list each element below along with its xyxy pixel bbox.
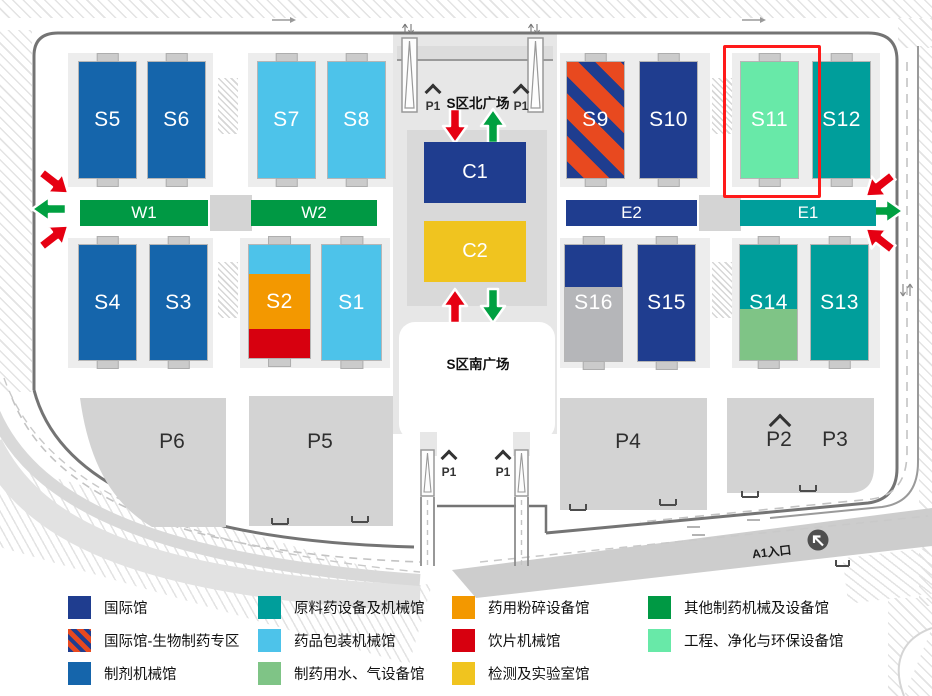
walkway-band [420,432,437,456]
hall-s5-label: S5 [79,62,136,178]
chevron-decor [712,262,732,318]
hall-s8-label: S8 [328,62,385,178]
parking-p3-label: P3 [805,428,865,452]
legend-item: 其他制药机械及设备馆 [648,596,932,619]
legend-item: 药品包装机械馆 [258,629,452,652]
exit-arrow [32,197,66,221]
chevron-decor [218,262,238,318]
hall-c1-label: C1 [462,161,488,184]
legend-swatch-packaging [258,629,281,652]
p1-label: P1 [496,465,511,479]
caret-up-icon [425,84,442,101]
hatch-strip [0,30,32,392]
legend-label: 药用粉碎设备馆 [488,597,590,618]
legend-swatch-decoction [452,629,475,652]
legend-label: 制剂机械馆 [104,663,177,684]
legend-label: 饮片机械馆 [488,630,561,651]
hall-s2[interactable]: S2 [249,245,310,358]
hall-s9[interactable]: S9 [567,62,624,178]
legend-swatch-engineering [648,629,671,652]
a1-entrance-icon [808,530,829,551]
walkway-connector [699,195,741,231]
hall-w2[interactable]: W2 [251,200,377,226]
parking-entrance-marks [272,485,816,524]
hall-s16[interactable]: S16 [565,245,622,361]
parking-p4-label: P4 [598,430,658,454]
p1-label: P1 [514,99,529,113]
hall-s13[interactable]: S13 [811,245,868,360]
hall-e2-label: E2 [621,203,642,223]
parking-p2-label: P2 [749,428,809,452]
hall-s1[interactable]: S1 [322,245,381,360]
hall-w1[interactable]: W1 [80,200,208,226]
chevron-decor [218,78,238,134]
parking-p6-label: P6 [142,430,202,454]
legend-swatch-water-gas [258,662,281,685]
tower-road-edges [421,497,528,566]
p1-bridge-tag: P1 [420,86,446,113]
p1-label: P1 [442,465,457,479]
legend-swatch-preparation [68,662,91,685]
hall-c2-label: C2 [462,240,488,263]
hall-s14-label: S14 [740,245,797,360]
legend-label: 原料药设备及机械馆 [294,597,425,618]
p1-bridge-tag: P1 [436,452,462,479]
south-plaza-label: S区南广场 [442,353,514,373]
p1-label: P1 [426,99,441,113]
legend-item: 工程、净化与环保设备馆 [648,629,932,652]
hall-w2-label: W2 [301,203,327,223]
caret-up-icon [441,450,458,467]
venue-boundary [529,506,546,533]
legend-swatch-other [648,596,671,619]
hall-s10[interactable]: S10 [640,62,697,178]
legend-item: 制药用水、气设备馆 [258,662,452,685]
legend-swatch-international [68,596,91,619]
hatch-strip [898,18,932,48]
hatch-strip [0,0,932,18]
legend-swatch-api [258,596,281,619]
caret-up-icon [513,84,530,101]
hall-e2[interactable]: E2 [566,200,697,226]
south-plaza-area [399,322,555,440]
caret-up-icon [495,450,512,467]
hall-e1-label: E1 [798,203,819,223]
legend-label: 药品包装机械馆 [294,630,396,651]
road-direction-arrows [901,284,913,296]
hall-s3-label: S3 [150,245,207,360]
north-crosswalk [397,46,553,61]
north-plaza-label: S区北广场 [443,92,513,112]
bridge-tower [515,450,528,496]
parking-p5-label: P5 [290,430,350,454]
hall-s2-label: S2 [249,245,310,358]
legend-label: 国际馆 [104,597,148,618]
hall-s15[interactable]: S15 [638,245,695,361]
legend-swatch-testing-lab [452,662,475,685]
hall-s13-label: S13 [811,245,868,360]
hall-s16-label: S16 [565,245,622,361]
hall-s8[interactable]: S8 [328,62,385,178]
road-arrow-marks [687,520,760,535]
hall-s12-label: S12 [813,62,870,178]
hall-s6[interactable]: S6 [148,62,205,178]
legend-label: 其他制药机械及设备馆 [684,597,829,618]
hall-e1[interactable]: E1 [740,200,876,226]
legend-item: 饮片机械馆 [452,629,648,652]
venue-map: S5 S6 S7 S8 S9 S10 S11 S12 S4 S3 S2 S1 S… [0,0,932,696]
p1-bridge-tag: P1 [508,86,534,113]
p1-bridge-tag: P1 [490,452,516,479]
hall-c1[interactable]: C1 [424,142,526,203]
legend-label: 工程、净化与环保设备馆 [684,630,844,651]
legend-label: 检测及实验室馆 [488,663,590,684]
legend-item: 制剂机械馆 [68,662,258,685]
hall-s3[interactable]: S3 [150,245,207,360]
dashed-road [428,500,522,570]
hall-s14[interactable]: S14 [740,245,797,360]
walkway-connector [210,195,252,231]
parking-p4-area [560,398,707,510]
legend-item: 药用粉碎设备馆 [452,596,648,619]
hall-s1-label: S1 [322,245,381,360]
legend-item: 检测及实验室馆 [452,662,648,685]
legend-item: 国际馆-生物制药专区 [68,629,258,652]
hall-s7[interactable]: S7 [258,62,315,178]
legend-item: 原料药设备及机械馆 [258,596,452,619]
hall-s12[interactable]: S12 [813,62,870,178]
bridge-tower [421,450,434,496]
a1-entrance-label: A1入口 [751,541,792,562]
legend-label: 国际馆-生物制药专区 [104,630,239,651]
legend-label: 制药用水、气设备馆 [294,663,425,684]
hall-s4[interactable]: S4 [79,245,136,360]
hall-w1-label: W1 [131,203,157,223]
hatch-strip [919,46,932,606]
legend-item: 国际馆 [68,596,258,619]
hall-s5[interactable]: S5 [79,62,136,178]
hall-c2[interactable]: C2 [424,221,526,282]
hall-s6-label: S6 [148,62,205,178]
hall-s4-label: S4 [79,245,136,360]
hall-s7-label: S7 [258,62,315,178]
hall-s9-label: S9 [567,62,624,178]
legend: 国际馆 国际馆-生物制药专区 制剂机械馆 原料药设备及机械馆 药品包装机械馆 制… [68,591,932,690]
hall-s10-label: S10 [640,62,697,178]
hall-s15-label: S15 [638,245,695,361]
parking-p5-area [249,396,393,526]
legend-swatch-crushing [452,596,475,619]
s11-highlight-box [723,45,821,198]
legend-swatch-biopharma [68,629,91,652]
